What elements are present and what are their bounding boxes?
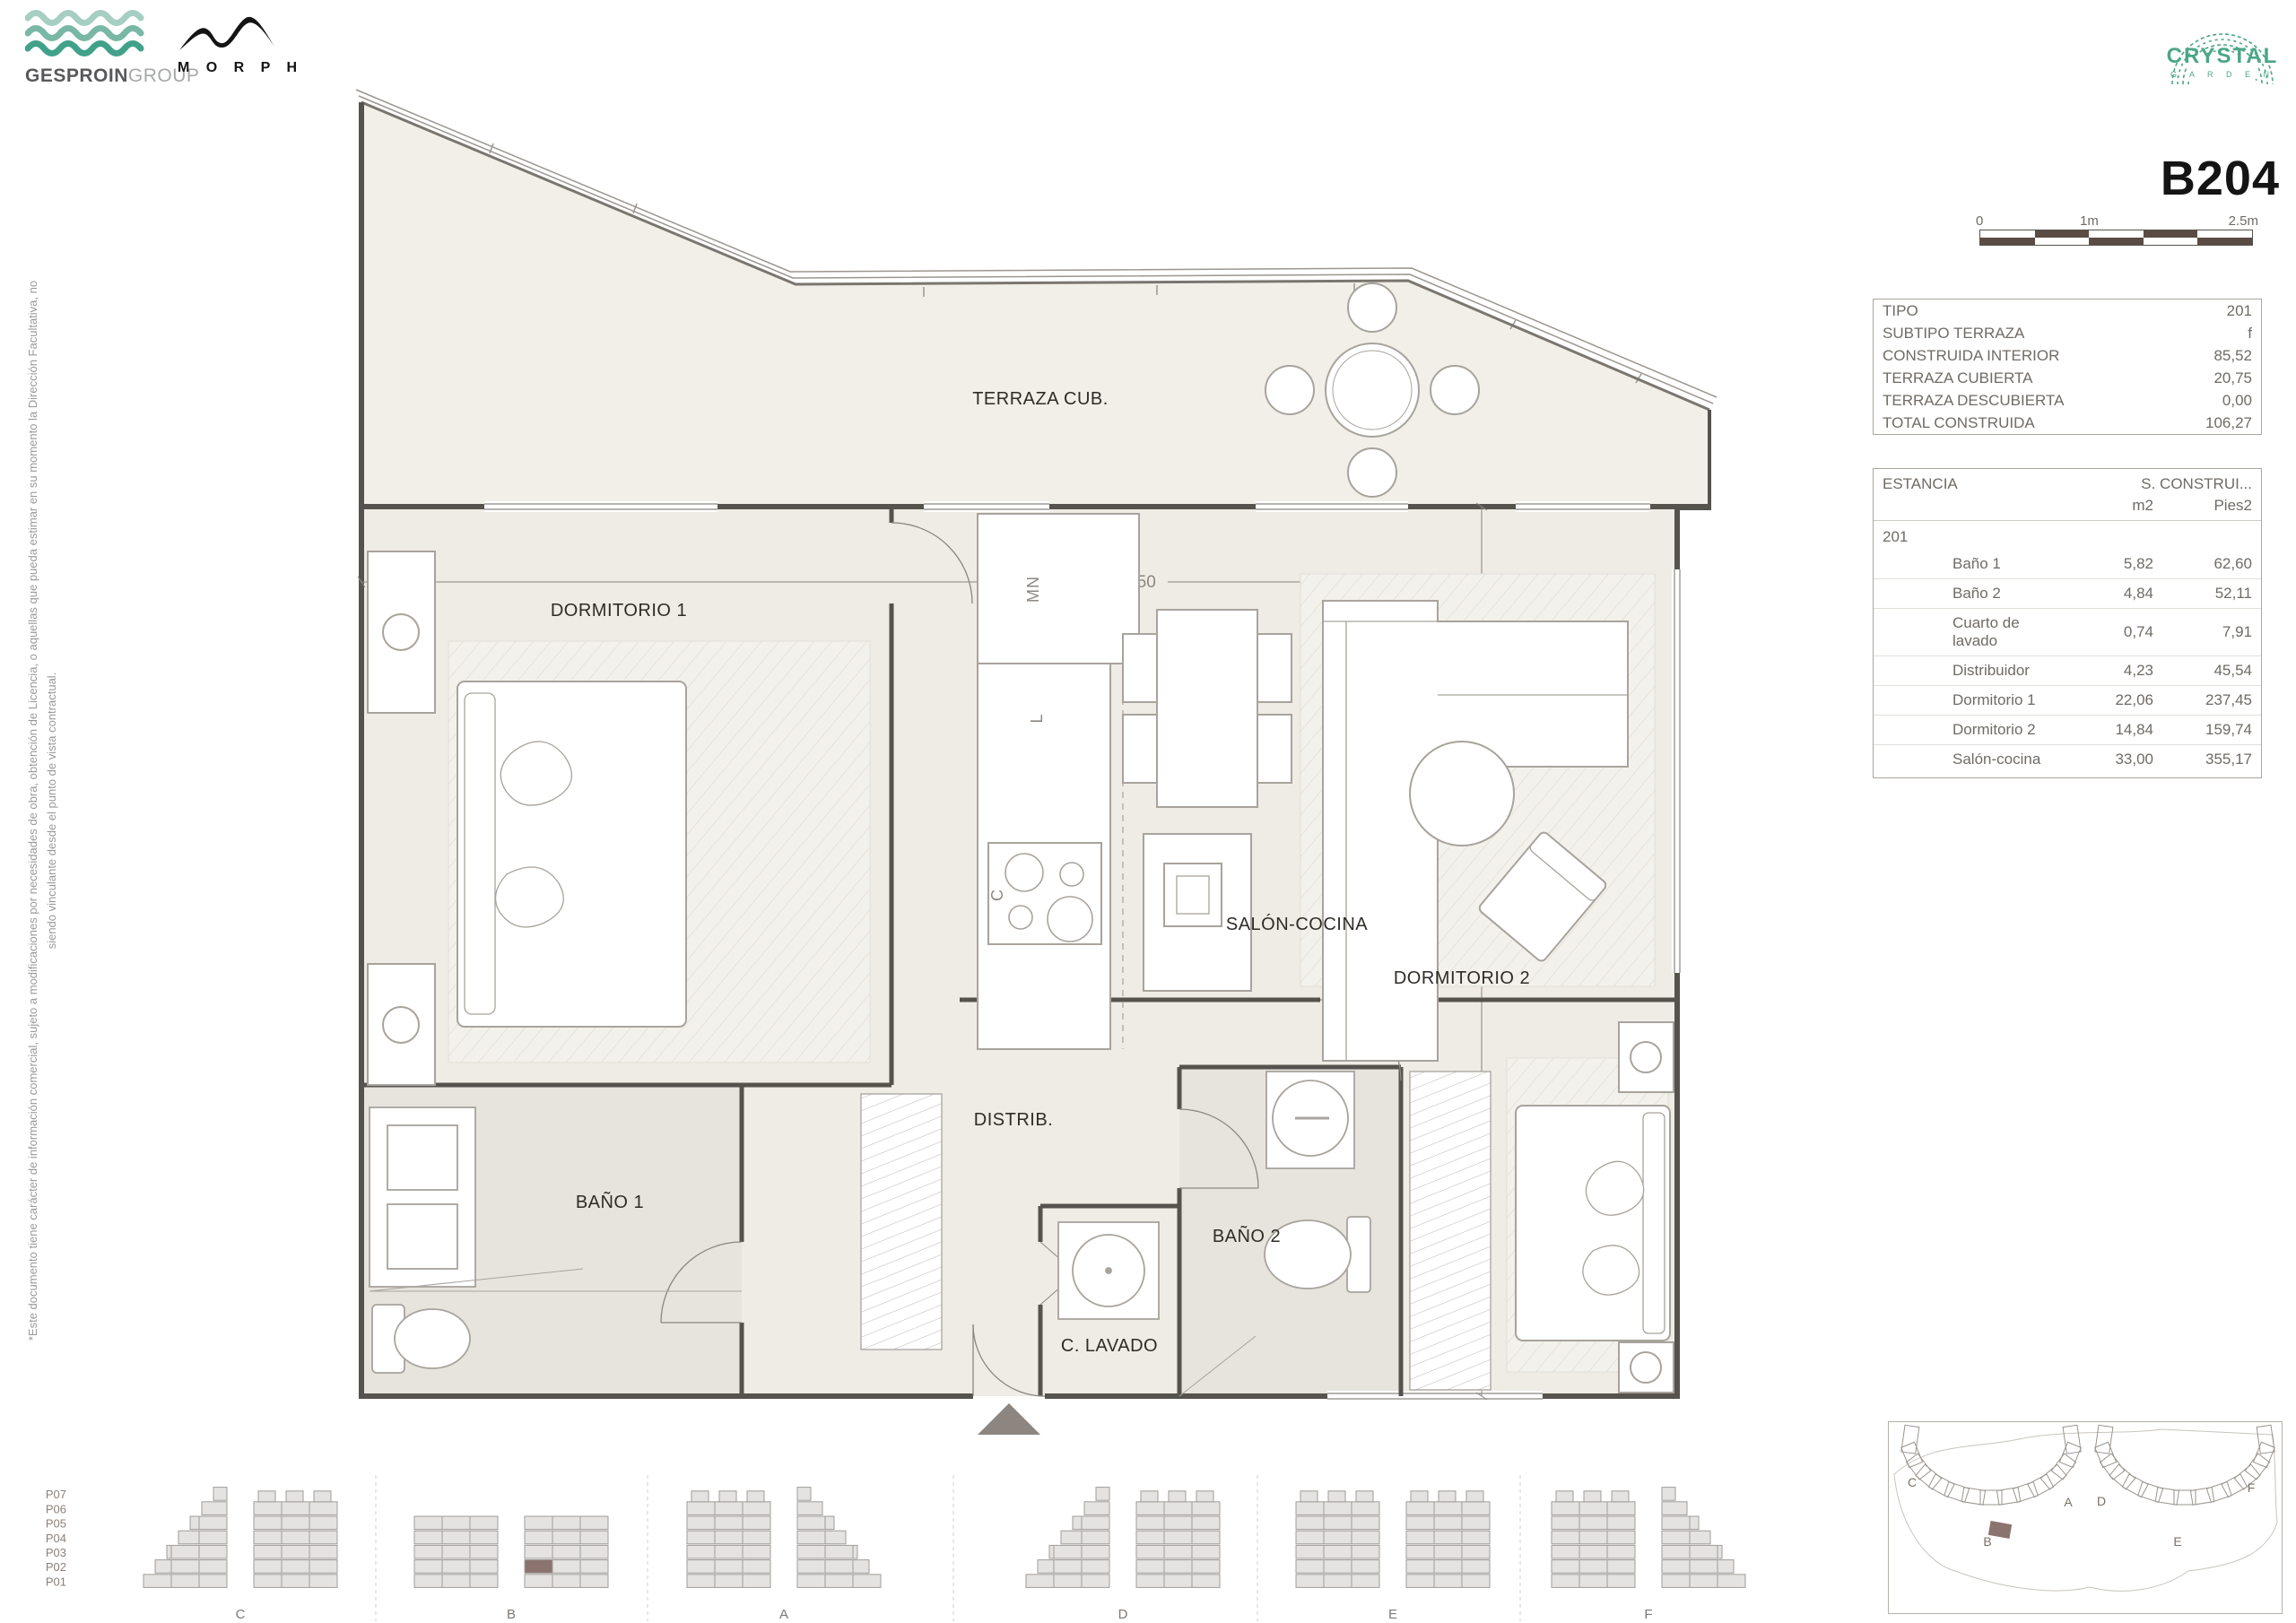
scale-segment (1980, 230, 2035, 238)
scale-bar-graphic (1979, 230, 2253, 246)
room-name: Cuarto de lavado (1883, 614, 2067, 650)
site-block-label: A (2064, 1495, 2073, 1509)
dorm2-label: DORMITORIO 2 (1394, 968, 1530, 988)
summary-label: TERRAZA CUBIERTA (1883, 369, 2033, 387)
room-pies2: 52,11 (2153, 585, 2252, 603)
kitchen-c-label: C (988, 889, 1006, 901)
room-pies2: 355,17 (2153, 751, 2252, 768)
room-m2: 0,74 (2067, 623, 2153, 641)
kitchen-l-label: L (1028, 713, 1046, 723)
site-block-label: F (2248, 1480, 2256, 1495)
room-name: Dormitorio 2 (1883, 721, 2067, 739)
room-pies2: 45,54 (2153, 662, 2252, 680)
room-m2: 4,84 (2067, 585, 2153, 603)
elevation-section-label: E (1388, 1607, 1397, 1622)
site-highlighted-unit (1988, 1521, 2012, 1539)
scale-segment (1980, 238, 2035, 245)
floor-label: P07 (46, 1488, 66, 1501)
site-block-label: B (1983, 1534, 1991, 1549)
room-area-row: Baño 15,8262,60 (1874, 550, 2261, 578)
room-m2: 33,00 (2067, 751, 2153, 768)
crystal-subwordmark: G A R D E N (2163, 70, 2282, 79)
kitchen-mn-label: MN (1024, 576, 1042, 603)
site-building-unit (2191, 1488, 2214, 1506)
summary-label: TOTAL CONSTRUIDA (1883, 413, 2035, 432)
summary-value: 20,75 (2213, 369, 2252, 387)
room-pies2: 7,91 (2153, 623, 2252, 641)
summary-value: 106,27 (2205, 413, 2252, 432)
room-areas-table: ESTANCIA S. CONSTRUI... m2 Pies2 201 Bañ… (1873, 468, 2262, 778)
room-area-row: Salón-cocina33,00355,17 (1874, 744, 2261, 774)
elevation-section-label: A (779, 1607, 788, 1622)
site-block-label: C (1908, 1475, 1917, 1489)
scale-segment (2035, 238, 2090, 245)
unit-code-title: B204 (2161, 151, 2280, 206)
summary-row: CONSTRUIDA INTERIOR85,52 (1874, 344, 2261, 367)
elevation-section-label: F (1644, 1607, 1652, 1622)
room-pies2: 62,60 (2153, 555, 2252, 573)
rooms-col-estancia: ESTANCIA (1883, 475, 1958, 493)
summary-row: TIPO201 (1874, 299, 2261, 322)
summary-label: TERRAZA DESCUBIERTA (1883, 391, 2064, 410)
morph-ridge-icon (178, 9, 276, 56)
summary-value: 0,00 (2222, 391, 2252, 410)
dorm2-wardrobe (1410, 1072, 1491, 1390)
crystal-wordmark: CRYSTAL (2163, 44, 2282, 69)
scale-label-2.5m: 2.5m (2229, 213, 2258, 229)
disclaimer-line-2: siendo vinculante desde el punto de vist… (42, 133, 61, 1488)
floor-label: P01 (46, 1575, 66, 1588)
site-plan: CABDEF (1888, 1421, 2283, 1614)
summary-row: SUBTIPO TERRAZAf (1874, 322, 2261, 344)
legal-disclaimer: *Este documento tiene carácter de inform… (23, 133, 61, 1488)
scale-segment (2089, 238, 2144, 245)
scale-segment (2089, 230, 2144, 238)
room-name: Baño 1 (1883, 555, 2067, 573)
room-area-row: Dormitorio 122,06237,45 (1874, 685, 2261, 715)
rooms-subcol-m2: m2 (2067, 497, 2153, 515)
terraza-label: TERRAZA CUB. (972, 389, 1109, 409)
summary-row: TOTAL CONSTRUIDA106,27 (1874, 412, 2261, 434)
scale-segment (2144, 230, 2198, 238)
scale-bar: 0 1m 2.5m (1979, 213, 2253, 246)
site-building-unit (2051, 1454, 2075, 1480)
building-elevations: P07P06P05P04P03P02P01CBADEF (0, 1471, 1874, 1623)
rooms-group-201: 201 (1874, 521, 2261, 550)
entrance-marker (978, 1403, 1040, 1435)
room-name: Distribuidor (1883, 662, 2067, 680)
gesproin-wordmark: GESPROINGROUP (25, 65, 160, 87)
room-m2: 5,82 (2067, 555, 2153, 573)
floor-label: P04 (46, 1532, 66, 1545)
dorm2-furniture (1410, 1022, 1674, 1393)
site-building-unit (2245, 1454, 2269, 1480)
scale-segment (2197, 238, 2252, 245)
site-building-unit (2059, 1442, 2081, 1467)
room-name: Salón-cocina (1883, 751, 2067, 768)
elevation-section-label: B (507, 1607, 516, 1622)
morph-wordmark: M O R P H (178, 60, 276, 76)
dorm1-label: DORMITORIO 1 (551, 601, 687, 621)
floor-label: P02 (46, 1560, 66, 1574)
room-m2: 4,23 (2067, 662, 2153, 680)
site-building-unit (2122, 1474, 2148, 1497)
salon-label: SALÓN-COCINA (1226, 914, 1368, 934)
summary-label: TIPO (1883, 301, 1918, 320)
bath2-label: BAÑO 2 (1213, 1225, 1281, 1246)
room-m2: 14,84 (2067, 721, 2153, 739)
floor-label: P05 (46, 1517, 66, 1531)
floor-plan: 10,50 7,79 DORMITORIO 1 (350, 85, 1749, 1444)
summary-label: CONSTRUIDA INTERIOR (1883, 346, 2059, 365)
disclaimer-line-1: *Este documento tiene carácter de inform… (23, 133, 42, 1488)
gesproin-waves-icon (25, 7, 160, 59)
elevation-section-label: C (236, 1607, 246, 1622)
site-building-unit (2028, 1474, 2054, 1497)
distrib-label: DISTRIB. (974, 1110, 1053, 1130)
site-building-unit (2253, 1442, 2274, 1467)
summary-row: TERRAZA DESCUBIERTA0,00 (1874, 389, 2261, 412)
site-building-unit (1997, 1488, 2021, 1506)
scale-label-0: 0 (1976, 213, 1983, 229)
terrace-floor (361, 102, 1709, 507)
rooms-col-construida: S. CONSTRUI... (2141, 475, 2252, 493)
scale-segment (2035, 230, 2090, 238)
bath1-label: BAÑO 1 (576, 1191, 644, 1212)
summary-label: SUBTIPO TERRAZA (1883, 324, 2024, 343)
room-pies2: 159,74 (2153, 721, 2252, 739)
site-block-label: E (2173, 1534, 2181, 1549)
site-building-unit (1944, 1482, 1970, 1503)
site-building-unit (1928, 1474, 1954, 1497)
gesproin-logo: GESPROINGROUP (25, 7, 160, 87)
room-m2: 22,06 (2067, 691, 2153, 709)
scale-segment (2197, 230, 2252, 238)
site-building-unit (2206, 1482, 2231, 1503)
scale-segment (2144, 238, 2198, 245)
site-building-unit (2138, 1482, 2163, 1503)
room-area-row: Distribuidor4,2345,54 (1874, 655, 2261, 685)
elevation-section-label: D (1118, 1607, 1128, 1622)
laundry-label: C. LAVADO (1061, 1336, 1158, 1356)
site-building-unit (2222, 1474, 2248, 1497)
rooms-subcol-pies2: Pies2 (2153, 497, 2252, 515)
site-building-unit (2013, 1482, 2038, 1503)
site-building-unit (2095, 1442, 2117, 1467)
morph-logo: M O R P H (178, 9, 276, 76)
site-block-label: D (2097, 1494, 2106, 1508)
floor-label: P03 (46, 1546, 66, 1559)
room-pies2: 237,45 (2153, 691, 2252, 709)
summary-value: 85,52 (2213, 346, 2252, 365)
summary-value: f (2248, 324, 2252, 343)
room-area-row: Dormitorio 214,84159,74 (1874, 715, 2261, 744)
summary-value: 201 (2227, 301, 2252, 320)
room-name: Baño 2 (1883, 585, 2067, 603)
unit-summary-table: TIPO201SUBTIPO TERRAZAfCONSTRUIDA INTERI… (1873, 299, 2262, 435)
room-name: Dormitorio 1 (1883, 691, 2067, 709)
hall-wardrobe (861, 1094, 942, 1350)
scale-label-1m: 1m (2080, 213, 2099, 229)
summary-row: TERRAZA CUBIERTA20,75 (1874, 367, 2261, 389)
crystal-garden-logo: CRYSTAL G A R D E N (2163, 5, 2282, 79)
laundry-fixtures (1058, 1222, 1159, 1319)
site-building-unit (1901, 1442, 1923, 1467)
floor-label: P06 (46, 1502, 66, 1515)
room-area-row: Baño 24,8452,11 (1874, 578, 2261, 608)
room-area-row: Cuarto de lavado0,747,91 (1874, 608, 2261, 655)
